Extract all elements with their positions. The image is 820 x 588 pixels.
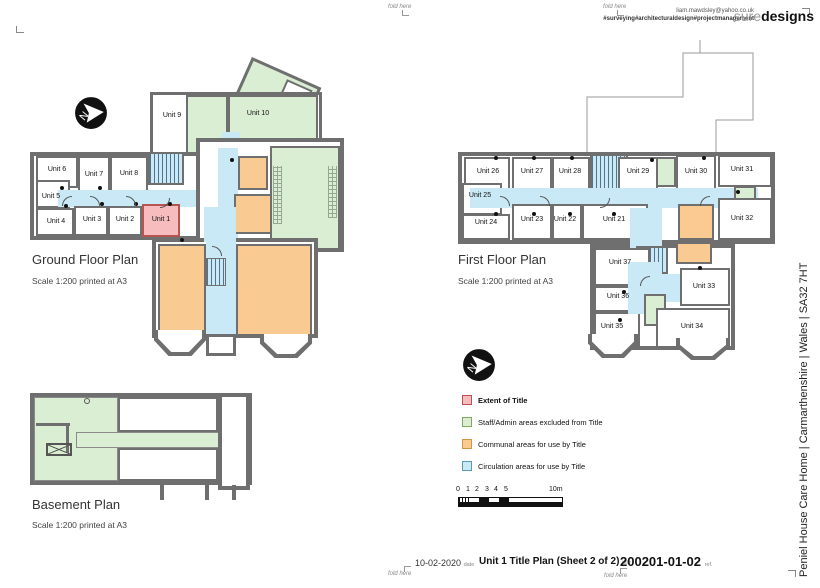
- basement-room-bottom: [118, 448, 218, 481]
- wall-stub: [205, 485, 209, 500]
- scalebar-tick: 4: [494, 486, 498, 493]
- legend-label-communal: Communal areas for use by Title: [478, 440, 586, 449]
- unit-label: Unit 34: [666, 323, 718, 331]
- first-plan-scale: Scale 1:200 printed at A3: [458, 276, 553, 286]
- fold-here-bottom-right: fold here: [604, 573, 627, 579]
- basement-circle-fixture: [84, 398, 90, 404]
- unit-label: Unit 4: [38, 218, 74, 226]
- unit-label: Unit 7: [80, 171, 108, 179]
- scalebar-tick: 1: [466, 486, 470, 493]
- scalebar-tick: 0: [456, 486, 460, 493]
- ground-corridor-lower: [206, 242, 236, 336]
- door-dot: [622, 290, 626, 294]
- unit-label: Unit 33: [682, 283, 726, 291]
- ground-stairs-lower: [206, 258, 226, 286]
- fold-here-bottom-left: fold here: [388, 571, 411, 577]
- bay-window-inner: [158, 330, 202, 352]
- bay-window-inner: [680, 338, 726, 356]
- door-dot: [570, 156, 574, 160]
- sheet-date: 10-02-2020 date: [415, 558, 474, 568]
- first-plan-title: First Floor Plan: [458, 252, 546, 267]
- scalebar-tick: 3: [485, 486, 489, 493]
- drawing-sheet: fold here fold here liam.mawdsley@yahoo.…: [0, 0, 820, 588]
- unit-label: Unit 3: [76, 216, 108, 224]
- sheet-title: Unit 1 Title Plan (Sheet 2 of 2) title: [479, 556, 631, 567]
- basement-corridor: [76, 432, 220, 448]
- bay-window-inner: [264, 334, 308, 354]
- door-dot: [494, 212, 498, 216]
- legend-swatch-circulation: [462, 461, 472, 471]
- kitchen-appliance-strip: [273, 166, 282, 224]
- legend-swatch-communal: [462, 439, 472, 449]
- unit-label: Unit 9: [150, 112, 194, 120]
- scale-bar-bottom: [459, 502, 562, 506]
- fold-bracket: [402, 10, 409, 16]
- door-dot: [612, 212, 616, 216]
- unit-label: Unit 10: [232, 110, 284, 118]
- contact-tagline: #surveying#architecturaldesign#projectma…: [603, 16, 754, 22]
- ground-stairs: [148, 152, 184, 185]
- ground-corridor-bridge: [204, 207, 236, 242]
- basement-crate-symbol: [46, 443, 72, 456]
- basement-inner-wall: [36, 423, 70, 426]
- legend-label-extent: Extent of Title: [478, 396, 527, 405]
- ground-plan-title: Ground Floor Plan: [32, 252, 138, 267]
- legend-swatch-extent: [462, 395, 472, 405]
- door-dot: [98, 186, 102, 190]
- door-dot: [702, 156, 706, 160]
- first-communal-room: [678, 204, 714, 240]
- door-dot: [532, 156, 536, 160]
- ref-value: 200201-01-02: [620, 554, 701, 569]
- bay-window: [154, 330, 206, 356]
- unit-label: Unit 2: [110, 216, 140, 224]
- ground-communal-room-right: [236, 244, 312, 336]
- ref-label: ref.: [705, 562, 713, 568]
- unit-label: Unit 30: [676, 168, 716, 176]
- legend-label-staff: Staff/Admin areas excluded from Title: [478, 418, 603, 427]
- date-value: 10-02-2020: [415, 558, 461, 568]
- door-dot: [698, 266, 702, 270]
- wall-stub: [160, 485, 164, 500]
- crop-mark-top-left: [16, 26, 24, 33]
- sheet-ref: 200201-01-02 ref.: [620, 554, 713, 569]
- north-arrow-icon: N: [462, 348, 496, 382]
- door-dot: [736, 190, 740, 194]
- unit-label: Unit 31: [716, 166, 768, 174]
- bay-window: [260, 334, 312, 358]
- unit-label: Unit 25: [460, 192, 500, 200]
- door-dot: [60, 186, 64, 190]
- scale-bar: [458, 497, 563, 507]
- scalebar-tick: 5: [504, 486, 508, 493]
- ground-plan-scale: Scale 1:200 printed at A3: [32, 276, 127, 286]
- title-value: Unit 1 Title Plan (Sheet 2 of 2): [479, 556, 619, 567]
- unit-label: Unit 28: [550, 168, 590, 176]
- unit-label: Unit 37: [594, 259, 646, 267]
- unit-label: Unit 1: [142, 216, 180, 224]
- door-dot: [532, 212, 536, 216]
- bay-window: [676, 338, 730, 360]
- unit-label: Unit 27: [512, 168, 552, 176]
- unit-label: Unit 24: [464, 219, 508, 227]
- project-title-vertical: Peniel House Care Home | Carmarthenshire…: [798, 17, 810, 577]
- door-dot: [180, 238, 184, 242]
- door-dot: [568, 212, 572, 216]
- basement-plan-title: Basement Plan: [32, 497, 120, 512]
- roof-outline: [580, 36, 780, 156]
- ground-communal-room-left: [158, 244, 206, 332]
- bay-window: [588, 334, 638, 358]
- unit-label: Unit 6: [38, 166, 76, 174]
- door-dot: [494, 156, 498, 160]
- north-arrow-icon: N: [74, 96, 108, 130]
- unit-label: Unit 35: [588, 323, 636, 331]
- basement-right-section: [218, 393, 250, 490]
- unit-label: Unit 36: [592, 293, 644, 301]
- date-label: date: [464, 562, 475, 568]
- wall-stub: [232, 485, 236, 500]
- scalebar-tick: 2: [475, 486, 479, 493]
- scalebar-end-label: 10m: [549, 486, 563, 493]
- unit-label: Unit 29: [618, 168, 658, 176]
- crop-mark-bottom-right: [788, 570, 796, 577]
- legend-label-circulation: Circulation areas for use by Title: [478, 462, 585, 471]
- ground-porch: [206, 334, 236, 356]
- basement-plan-scale: Scale 1:200 printed at A3: [32, 520, 127, 530]
- door-dot: [230, 158, 234, 162]
- unit-label: Unit 22: [546, 216, 584, 224]
- kitchen-appliance-strip: [328, 166, 337, 218]
- ground-communal-room-b: [234, 194, 272, 234]
- bay-window-inner: [592, 334, 634, 354]
- logo-light-part: sure: [734, 8, 761, 24]
- legend-swatch-staff: [462, 417, 472, 427]
- first-staff-wc: [656, 157, 676, 187]
- unit-label: Unit 26: [466, 168, 510, 176]
- door-dot: [100, 202, 104, 206]
- first-communal-room-lower: [676, 242, 712, 264]
- unit-label: Unit 8: [112, 170, 146, 178]
- basement-room-top: [118, 397, 218, 432]
- door-dot: [618, 318, 622, 322]
- ground-communal-room-a: [238, 156, 268, 190]
- first-room-unit24: [462, 214, 510, 240]
- door-dot: [650, 158, 654, 162]
- unit-label: Unit 32: [716, 215, 768, 223]
